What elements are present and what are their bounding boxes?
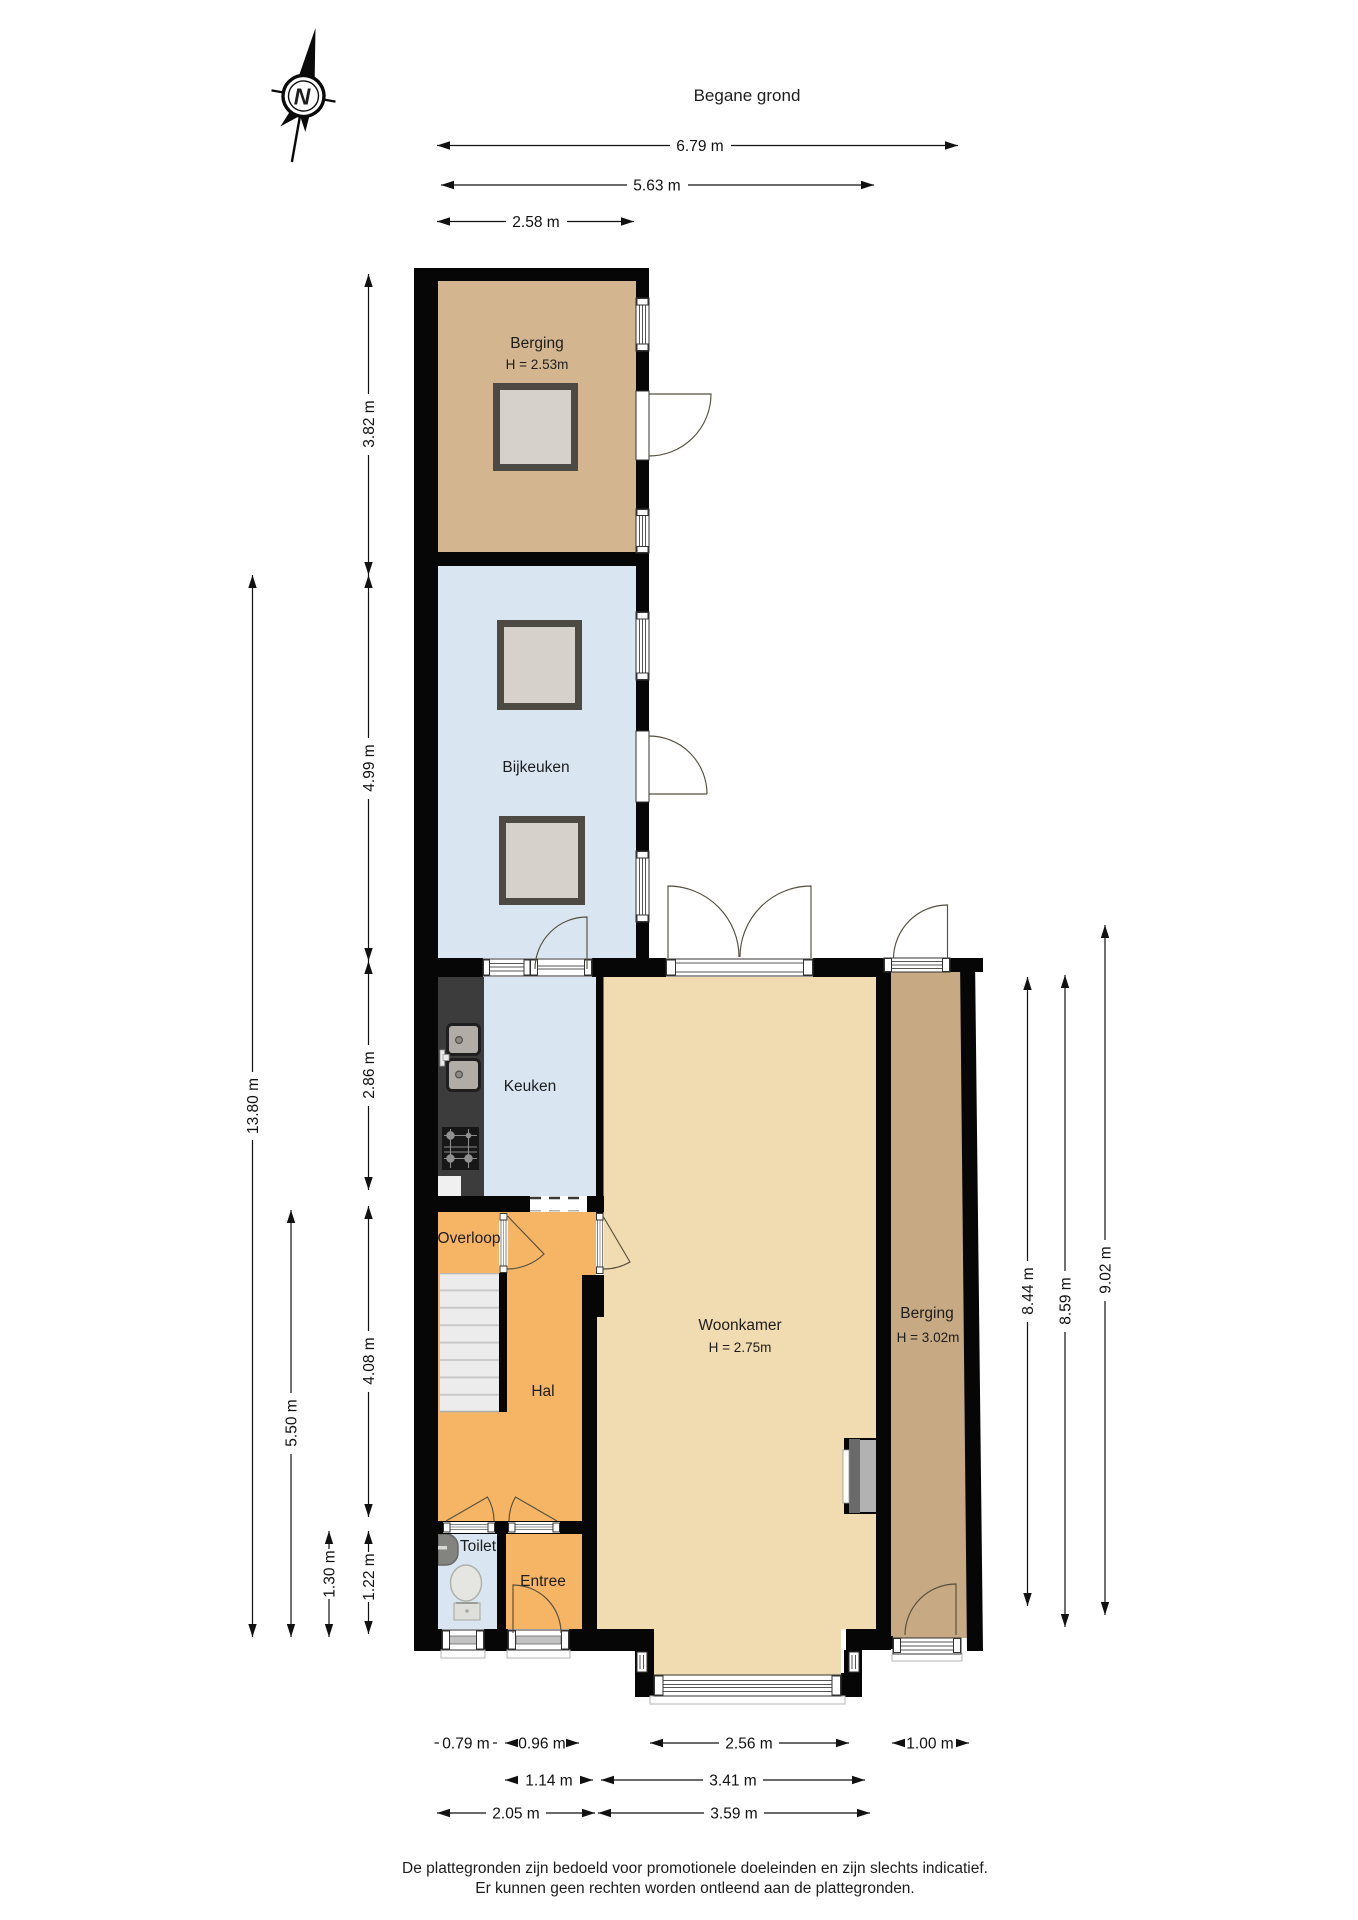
svg-text:1.22 m: 1.22 m: [361, 1553, 378, 1600]
svg-text:Keuken: Keuken: [504, 1078, 557, 1095]
svg-text:2.56 m: 2.56 m: [725, 1736, 772, 1753]
svg-text:13.80 m: 13.80 m: [245, 1078, 262, 1134]
svg-text:1.00 m: 1.00 m: [906, 1736, 953, 1753]
svg-text:De plattegronden zijn bedoeld: De plattegronden zijn bedoeld voor promo…: [402, 1860, 988, 1877]
svg-text:1.30 m: 1.30 m: [322, 1550, 339, 1597]
svg-text:Entree: Entree: [520, 1573, 566, 1590]
svg-text:2.58 m: 2.58 m: [512, 214, 559, 231]
svg-text:Bijkeuken: Bijkeuken: [502, 759, 569, 776]
svg-text:N: N: [294, 84, 311, 110]
svg-text:0.96 m: 0.96 m: [518, 1736, 565, 1753]
svg-text:4.99 m: 4.99 m: [361, 744, 378, 791]
svg-text:3.41 m: 3.41 m: [709, 1773, 756, 1790]
svg-text:5.50 m: 5.50 m: [284, 1399, 301, 1446]
svg-text:H = 2.53m: H = 2.53m: [506, 357, 569, 372]
svg-text:Berging: Berging: [900, 1305, 953, 1322]
svg-text:8.59 m: 8.59 m: [1058, 1277, 1075, 1324]
svg-text:Woonkamer: Woonkamer: [698, 1317, 781, 1334]
svg-text:Toilet: Toilet: [460, 1538, 497, 1555]
svg-text:1.14 m: 1.14 m: [525, 1773, 572, 1790]
svg-text:Overloop: Overloop: [438, 1230, 501, 1247]
svg-text:5.63 m: 5.63 m: [633, 178, 680, 195]
svg-text:6.79 m: 6.79 m: [676, 138, 723, 155]
svg-text:0.79 m: 0.79 m: [442, 1736, 489, 1753]
svg-text:3.59 m: 3.59 m: [710, 1806, 757, 1823]
svg-text:H = 2.75m: H = 2.75m: [709, 1340, 772, 1355]
svg-text:Hal: Hal: [531, 1383, 554, 1400]
svg-text:9.02 m: 9.02 m: [1098, 1246, 1115, 1293]
svg-text:Berging: Berging: [510, 335, 563, 352]
svg-text:4.08 m: 4.08 m: [361, 1337, 378, 1384]
svg-text:2.05 m: 2.05 m: [492, 1806, 539, 1823]
svg-text:Begane grond: Begane grond: [694, 86, 801, 105]
svg-text:3.82 m: 3.82 m: [361, 400, 378, 447]
svg-text:2.86 m: 2.86 m: [361, 1051, 378, 1098]
svg-text:8.44 m: 8.44 m: [1020, 1267, 1037, 1314]
svg-text:Er kunnen geen rechten worden: Er kunnen geen rechten worden ontleend a…: [475, 1880, 915, 1897]
svg-text:H = 3.02m: H = 3.02m: [897, 1330, 960, 1345]
